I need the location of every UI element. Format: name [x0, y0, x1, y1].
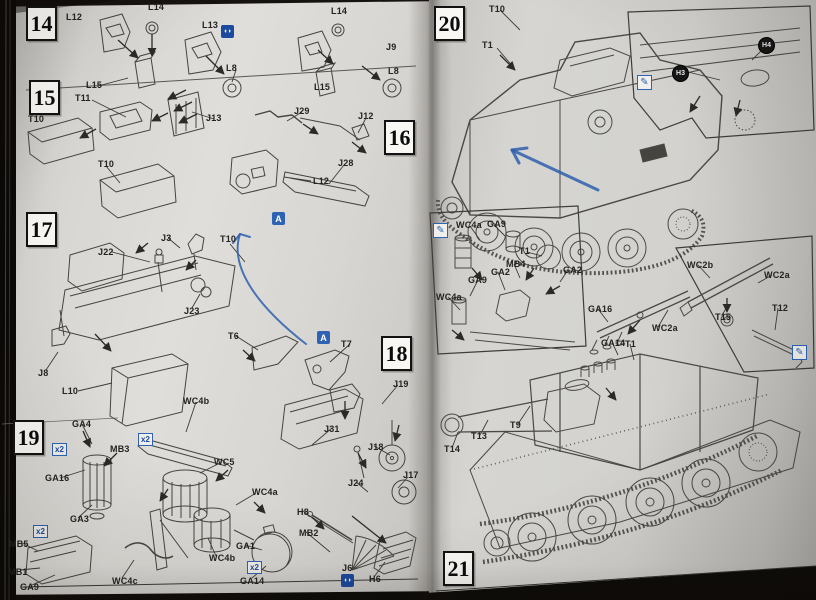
- part-label: MB5: [9, 539, 29, 549]
- part-label: L14: [148, 2, 164, 12]
- part-label: T10: [220, 234, 236, 244]
- part-label: GA9: [468, 275, 487, 285]
- part-label: GA9: [487, 219, 506, 229]
- x2-icon: x2: [33, 525, 48, 538]
- part-label: J29: [294, 106, 310, 116]
- part-label: T9: [510, 420, 521, 430]
- part-label: J13: [206, 113, 222, 123]
- part-label: J12: [358, 111, 374, 121]
- left-page: [16, 0, 429, 596]
- part-label: GA2: [491, 267, 510, 277]
- both-sides-icon: ◖◗: [341, 574, 354, 587]
- part-label: T14: [444, 444, 460, 454]
- part-label: J8: [38, 368, 48, 378]
- part-label: J18: [368, 442, 384, 452]
- paint-icon: ✎: [433, 223, 448, 238]
- part-label: L8: [388, 66, 399, 76]
- part-label: L14: [331, 6, 347, 16]
- step-number-box: 17: [26, 212, 57, 247]
- part-label: T13: [471, 431, 487, 441]
- step-number-box: 19: [13, 420, 44, 455]
- part-label: T1: [482, 40, 493, 50]
- part-label: J3: [161, 233, 171, 243]
- part-label: T6: [228, 331, 239, 341]
- part-label: WC2a: [764, 270, 790, 280]
- part-label: T10: [98, 159, 114, 169]
- part-label: T15: [715, 312, 731, 322]
- part-label: GA1: [236, 541, 255, 551]
- part-label: WC2b: [687, 260, 713, 270]
- manual-photo: 141516171819L12L14L13L15L8L14J9L15L8T10T…: [0, 0, 816, 600]
- part-label: L12: [313, 176, 329, 186]
- part-label: MB2: [299, 528, 319, 538]
- part-label: WC4a: [436, 292, 462, 302]
- part-label: L15: [314, 82, 330, 92]
- part-label: J6: [342, 563, 352, 573]
- part-label: J22: [98, 247, 114, 257]
- part-label: J9: [386, 42, 396, 52]
- part-label: J19: [393, 379, 409, 389]
- part-label: L15: [86, 80, 102, 90]
- part-label: GA14: [240, 576, 264, 586]
- part-label: J17: [403, 470, 419, 480]
- cement-icon: A: [272, 212, 285, 225]
- part-label: WC4b: [209, 553, 235, 563]
- part-label: H6: [369, 574, 381, 584]
- part-label: L8: [226, 63, 237, 73]
- both-sides-icon: ◖◗: [221, 25, 234, 38]
- part-label: J31: [324, 424, 340, 434]
- part-label: GA3: [70, 514, 89, 524]
- part-label: MB1: [8, 567, 28, 577]
- part-label: WC5: [214, 457, 235, 467]
- right-page: [429, 0, 816, 600]
- step-number-box: 21: [443, 551, 474, 586]
- step-number-box: 14: [26, 6, 57, 41]
- part-label: T10: [489, 4, 505, 14]
- part-label: J28: [338, 158, 354, 168]
- part-label: T1: [519, 246, 530, 256]
- step-number-box: 15: [29, 80, 60, 115]
- step-number-box: 20: [434, 6, 465, 41]
- part-label: WC4b: [183, 396, 209, 406]
- part-label: H8: [297, 507, 309, 517]
- part-label: WC2a: [652, 323, 678, 333]
- x2-icon: x2: [138, 433, 153, 446]
- part-label: T10: [28, 114, 44, 124]
- part-label: GA4: [72, 419, 91, 429]
- paint-icon: ✎: [792, 345, 807, 360]
- part-label: GA14: [601, 338, 625, 348]
- part-label: MB3: [110, 444, 130, 454]
- x2-icon: x2: [247, 561, 262, 574]
- part-label: GA2: [563, 265, 582, 275]
- part-label: L10: [62, 386, 78, 396]
- part-label: WC4a: [252, 487, 278, 497]
- step-number-box: 18: [381, 336, 412, 371]
- step-number-box: 16: [384, 120, 415, 155]
- part-label: L13: [202, 20, 218, 30]
- part-label: T7: [341, 339, 352, 349]
- circled-part-label: H4: [758, 37, 775, 54]
- part-label: WC4c: [112, 576, 138, 586]
- part-label: T12: [772, 303, 788, 313]
- cement-icon: A: [317, 331, 330, 344]
- part-label: L12: [66, 12, 82, 22]
- part-label: GA16: [45, 473, 69, 483]
- paint-icon: ✎: [637, 75, 652, 90]
- part-label: J24: [348, 478, 364, 488]
- circled-part-label: H3: [672, 65, 689, 82]
- part-label: WC4a: [456, 220, 482, 230]
- part-label: T11: [75, 93, 91, 103]
- part-label: GA16: [588, 304, 612, 314]
- part-label: J23: [184, 306, 200, 316]
- part-label: GA9: [20, 582, 39, 592]
- x2-icon: x2: [52, 443, 67, 456]
- part-label: T1: [625, 339, 636, 349]
